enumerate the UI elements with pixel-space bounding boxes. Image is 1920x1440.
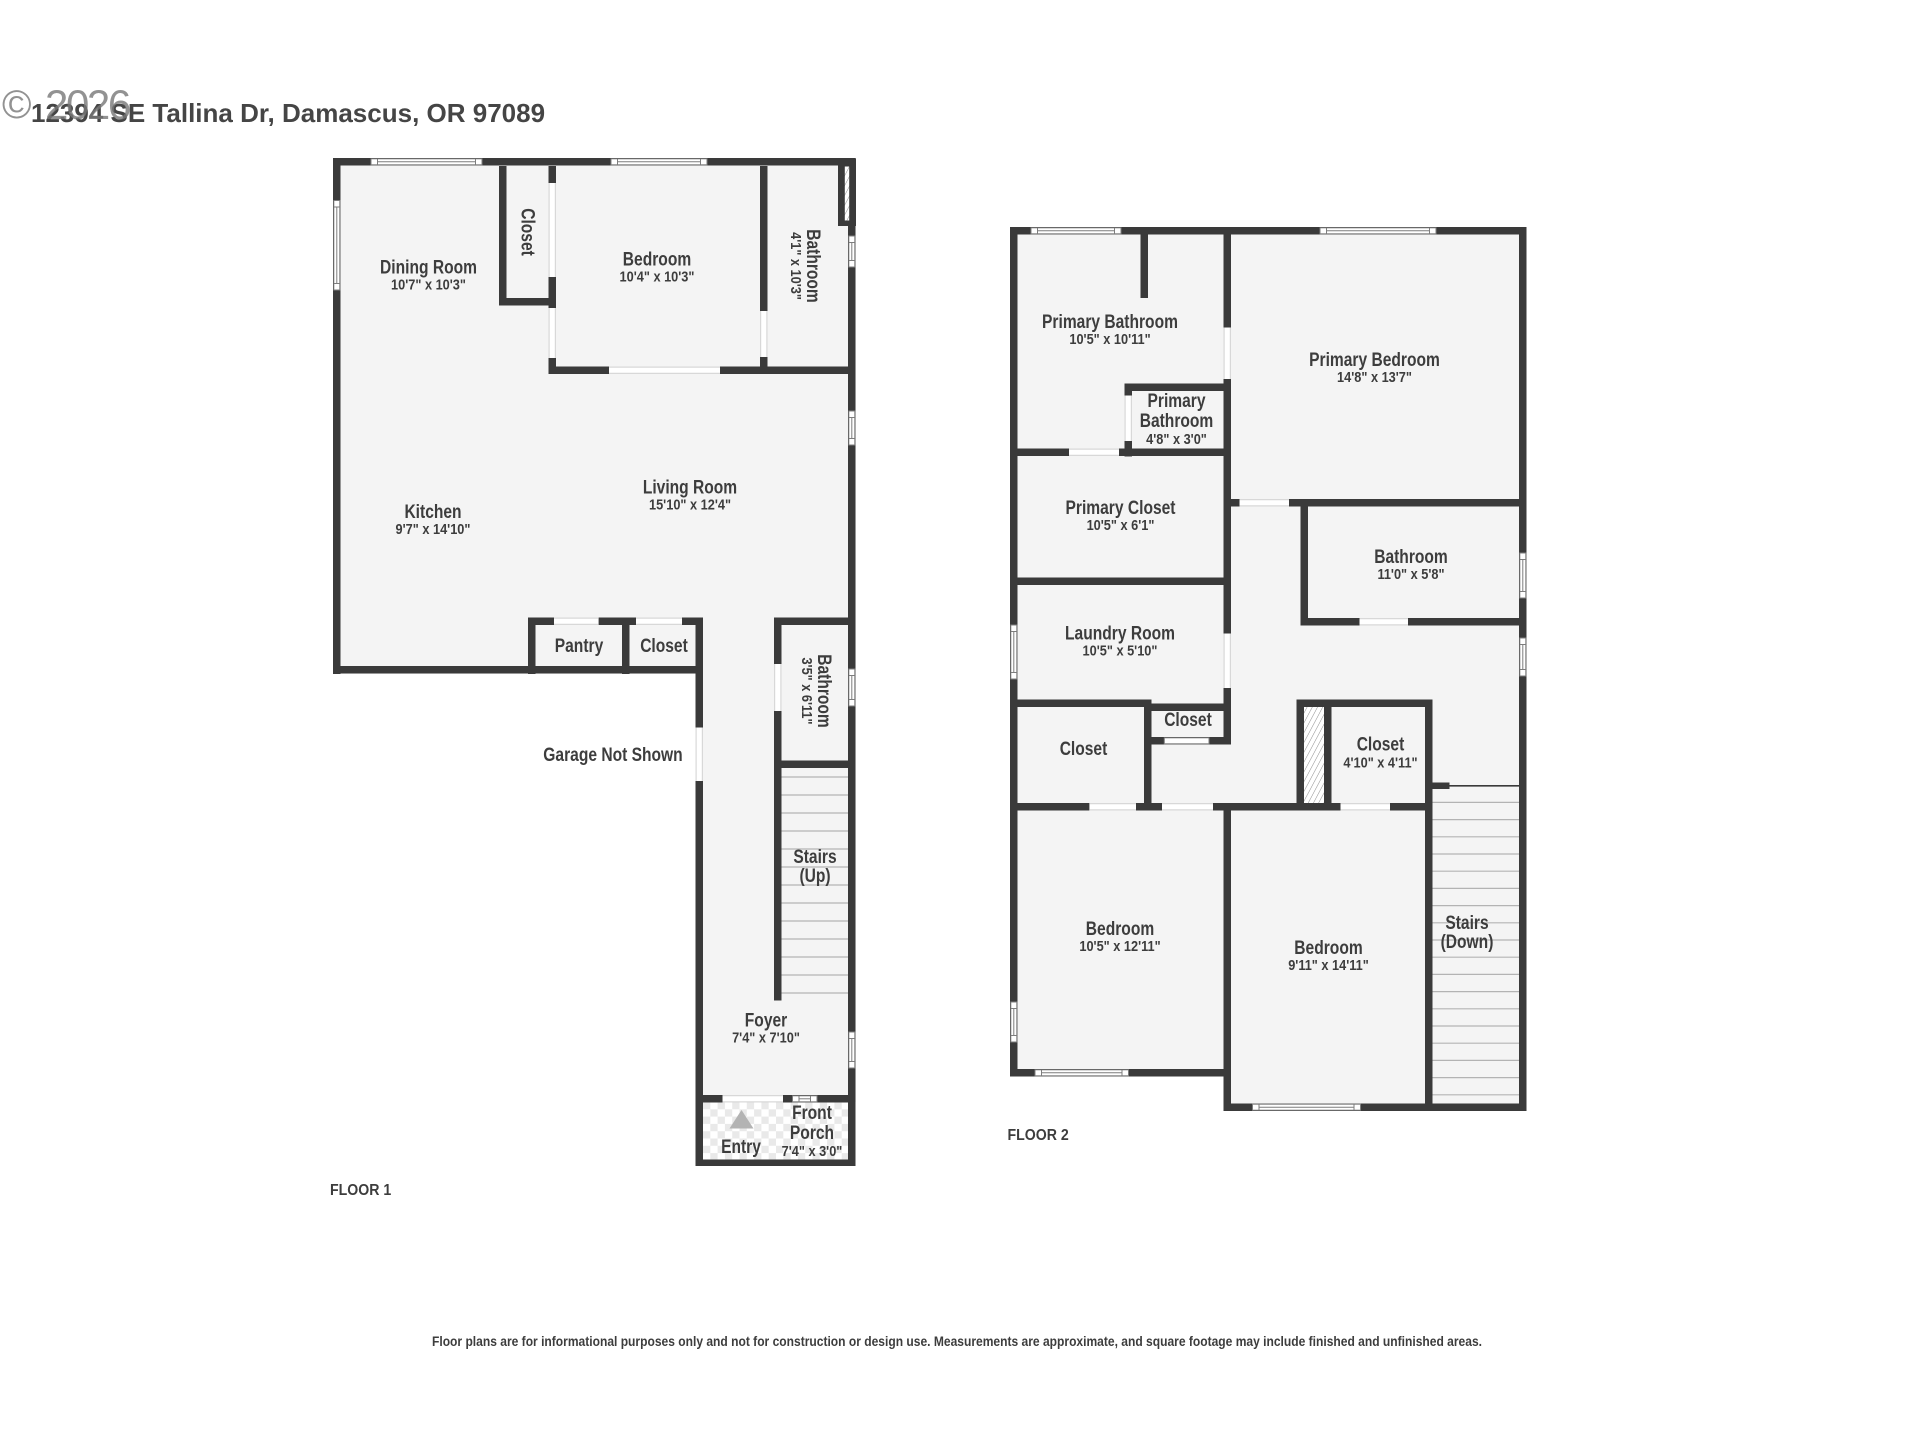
svg-text:(Down): (Down) <box>1441 932 1494 953</box>
svg-text:10'7" x 10'3": 10'7" x 10'3" <box>391 278 466 294</box>
svg-text:Foyer: Foyer <box>745 1011 788 1032</box>
svg-text:10'5" x 5'10": 10'5" x 5'10" <box>1083 644 1158 660</box>
svg-text:Closet: Closet <box>1357 735 1405 756</box>
svg-text:Closet: Closet <box>640 636 688 657</box>
svg-text:4'10" x 4'11": 4'10" x 4'11" <box>1343 756 1417 772</box>
svg-text:Bedroom: Bedroom <box>623 250 691 271</box>
svg-text:15'10" x 12'4": 15'10" x 12'4" <box>649 498 731 514</box>
svg-text:14'8" x 13'7": 14'8" x 13'7" <box>1337 370 1412 386</box>
svg-text:Living Room: Living Room <box>643 478 737 499</box>
svg-text:Stairs: Stairs <box>793 847 836 868</box>
svg-text:10'5" x 12'11": 10'5" x 12'11" <box>1079 939 1160 955</box>
svg-text:2026: 2026 <box>45 81 130 128</box>
svg-text:Primary: Primary <box>1148 391 1206 412</box>
svg-text:Bathroom: Bathroom <box>813 654 834 728</box>
svg-text:Dining Room: Dining Room <box>380 258 477 279</box>
svg-text:4'1" x 10'3": 4'1" x 10'3" <box>787 232 803 300</box>
svg-text:Primary Bedroom: Primary Bedroom <box>1309 350 1440 371</box>
svg-text:Kitchen: Kitchen <box>404 502 461 523</box>
svg-text:10'4" x 10'3": 10'4" x 10'3" <box>620 270 695 286</box>
svg-text:7'4" x 3'0": 7'4" x 3'0" <box>782 1144 843 1160</box>
svg-text:11'0" x 5'8": 11'0" x 5'8" <box>1377 567 1444 583</box>
svg-text:9'7" x 14'10": 9'7" x 14'10" <box>396 522 471 538</box>
svg-text:Closet: Closet <box>1164 710 1212 731</box>
svg-text:Bedroom: Bedroom <box>1086 919 1154 940</box>
svg-text:©: © <box>2 83 31 127</box>
svg-text:10'5" x 6'1": 10'5" x 6'1" <box>1087 518 1155 534</box>
svg-text:Bathroom: Bathroom <box>1140 411 1214 432</box>
svg-text:Pantry: Pantry <box>555 636 604 657</box>
svg-text:Primary Closet: Primary Closet <box>1066 498 1177 519</box>
svg-text:Porch: Porch <box>790 1123 834 1144</box>
svg-text:9'11" x 14'11": 9'11" x 14'11" <box>1288 958 1369 974</box>
svg-text:7'4" x 7'10": 7'4" x 7'10" <box>732 1031 800 1047</box>
svg-text:4'8" x 3'0": 4'8" x 3'0" <box>1146 432 1207 448</box>
svg-text:Garage Not Shown: Garage Not Shown <box>543 745 682 766</box>
svg-text:FLOOR 1: FLOOR 1 <box>330 1182 391 1199</box>
svg-text:FLOOR 2: FLOOR 2 <box>1008 1127 1069 1144</box>
svg-text:Bathroom: Bathroom <box>1374 547 1448 568</box>
svg-text:Laundry Room: Laundry Room <box>1065 624 1175 645</box>
svg-text:Bedroom: Bedroom <box>1294 938 1362 959</box>
svg-text:(Up): (Up) <box>799 866 830 887</box>
svg-text:Floor plans are for informatio: Floor plans are for informational purpos… <box>432 1333 1482 1349</box>
svg-text:Stairs: Stairs <box>1445 913 1488 934</box>
svg-text:Closet: Closet <box>517 208 538 256</box>
svg-text:10'5" x 10'11": 10'5" x 10'11" <box>1069 332 1150 348</box>
svg-text:Closet: Closet <box>1060 739 1108 760</box>
svg-text:Bathroom: Bathroom <box>802 229 823 303</box>
svg-text:Entry: Entry <box>721 1137 761 1158</box>
svg-text:Primary Bathroom: Primary Bathroom <box>1042 312 1178 333</box>
svg-text:Front: Front <box>792 1103 832 1124</box>
svg-text:3'5" x 6'11": 3'5" x 6'11" <box>798 657 814 724</box>
